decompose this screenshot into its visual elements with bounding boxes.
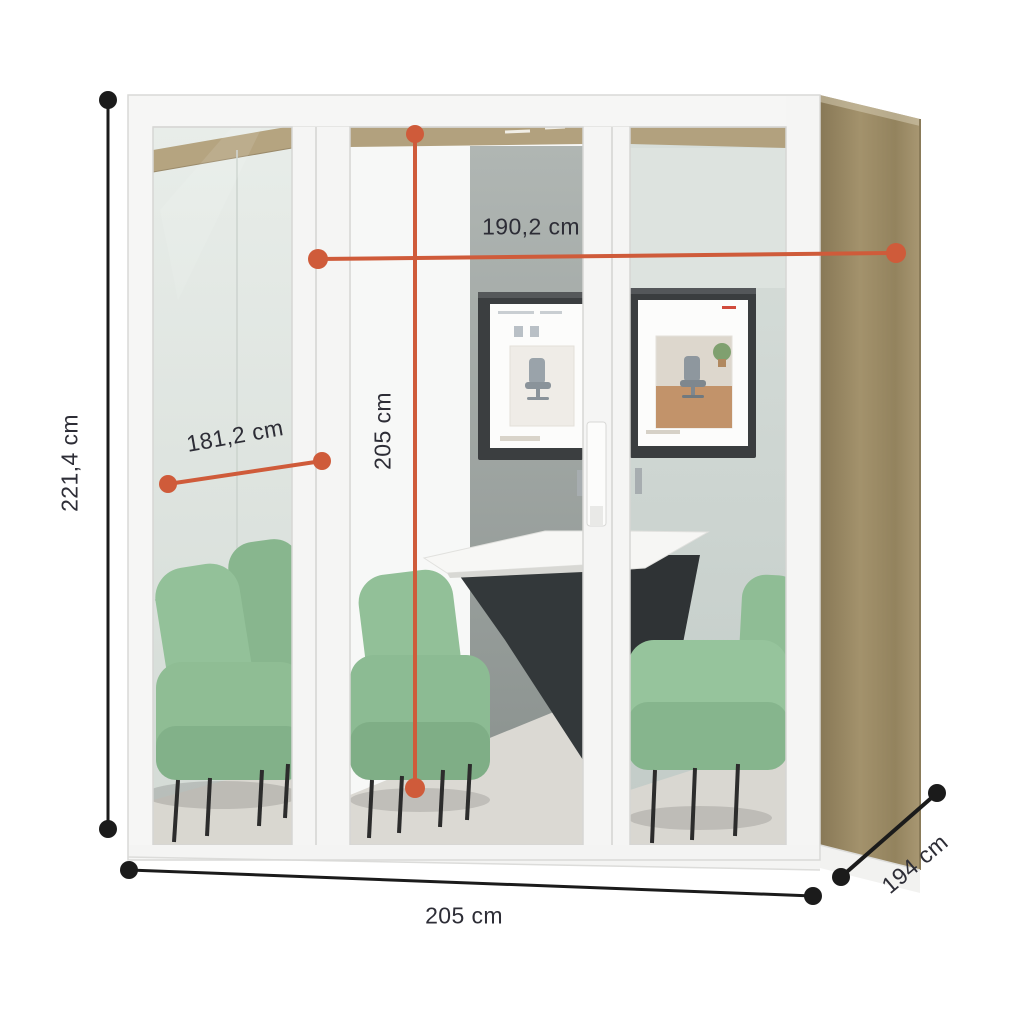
pod-side-wood-panel bbox=[820, 95, 920, 893]
internal-height-label: 205 cm bbox=[370, 392, 397, 470]
external-height-label: 221,4 cm bbox=[57, 414, 84, 512]
pod-dimension-diagram: 221,4 cm 190,2 cm 181,2 cm 205 cm 205 cm… bbox=[0, 0, 1024, 1024]
tv-screen bbox=[478, 292, 583, 460]
internal-width-label: 190,2 cm bbox=[482, 214, 580, 241]
external-width-label: 205 cm bbox=[425, 903, 503, 930]
pod-illustration bbox=[0, 0, 1024, 1024]
door-glass-right bbox=[628, 118, 803, 845]
door-handle bbox=[587, 422, 606, 526]
wall-hinge bbox=[635, 468, 642, 494]
dimension-external-height bbox=[99, 91, 117, 838]
tv-screen bbox=[630, 288, 756, 458]
